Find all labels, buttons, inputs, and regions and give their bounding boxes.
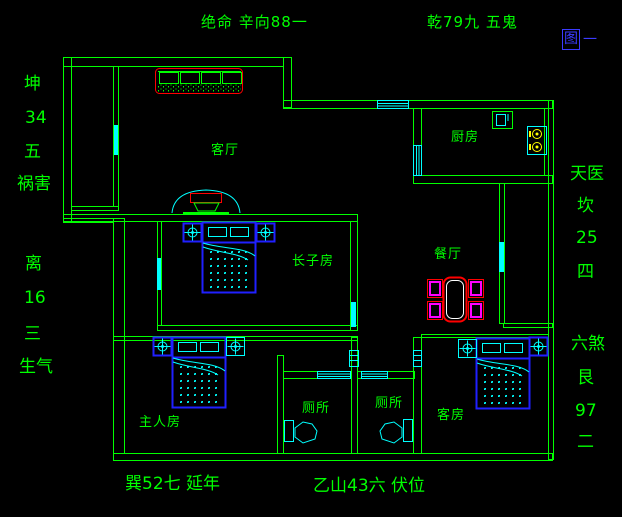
tv-stand	[172, 190, 240, 213]
dining-chairs	[428, 280, 484, 320]
room-label-eldest-son: 长子房	[292, 255, 334, 268]
figure-caption-suffix: 一	[583, 33, 597, 47]
annotation-right-lower-3: 二	[577, 434, 594, 451]
son-room-side-door	[351, 302, 356, 327]
annotation-right-upper-2: 25	[576, 230, 598, 247]
dining-table	[444, 278, 467, 322]
annotation-bottom-center: 乙山43六 伏位	[313, 478, 425, 495]
annotation-left-lower-1: 16	[24, 290, 46, 307]
room-label-guest: 客房	[437, 409, 465, 422]
nightstand-lamp-icon	[459, 338, 548, 358]
toilet-right-window	[362, 372, 388, 379]
annotation-right-upper-0: 天医	[570, 166, 604, 183]
kitchen-door	[414, 146, 422, 176]
annotation-left-upper-3: 祸害	[17, 176, 51, 193]
room-label-master: 主人房	[139, 416, 181, 429]
annotation-bottom-left: 巽52七 延年	[125, 476, 220, 493]
room-label-toilet-right: 厕所	[375, 397, 403, 410]
room-label-toilet-left: 厕所	[302, 402, 330, 415]
toilet-left-window	[318, 372, 351, 379]
annotation-top-right: 乾79九 五鬼	[427, 15, 518, 30]
bed-eldest-son	[203, 223, 256, 293]
annotation-right-lower-1: 艮	[577, 370, 594, 387]
room-label-living: 客厅	[211, 144, 239, 157]
sofa	[156, 69, 243, 94]
stove	[528, 127, 547, 155]
annotation-right-upper-1: 坎	[577, 198, 594, 215]
bed-master	[173, 338, 226, 408]
annotation-left-lower-3: 生气	[19, 359, 53, 376]
figure-caption: 图一	[562, 29, 597, 50]
toilet-left-fixture	[285, 421, 318, 444]
nightstand-lamp-icon	[184, 224, 275, 242]
son-room-door	[157, 258, 161, 290]
fengshui-floorplan-figure: 绝命 辛向88一 乾79九 五鬼 图一 坤 34 五 祸害 离 16 三 生气 …	[0, 0, 622, 517]
room-label-kitchen: 厨房	[451, 131, 479, 144]
hall-door-right	[414, 351, 422, 367]
kitchen-sink	[493, 112, 513, 129]
annotation-left-upper-2: 五	[24, 144, 41, 161]
closet-door	[114, 125, 118, 155]
annotation-top-left: 绝命 辛向88一	[201, 15, 308, 30]
top-window	[378, 101, 409, 109]
toilet-right-fixture	[380, 420, 413, 444]
figure-caption-boxed-char: 图	[562, 29, 580, 50]
bed-guest	[477, 339, 530, 409]
annotation-left-upper-0: 坤	[24, 76, 41, 93]
annotation-left-upper-1: 34	[25, 110, 47, 127]
annotation-right-upper-3: 四	[577, 264, 594, 281]
annotation-left-lower-0: 离	[25, 256, 42, 273]
room-label-dining: 餐厅	[434, 248, 462, 261]
annotation-left-lower-2: 三	[24, 326, 41, 343]
annotation-right-lower-2: 97	[575, 403, 597, 420]
annotation-right-lower-0: 六煞	[571, 336, 605, 353]
balcony-window	[499, 242, 504, 272]
